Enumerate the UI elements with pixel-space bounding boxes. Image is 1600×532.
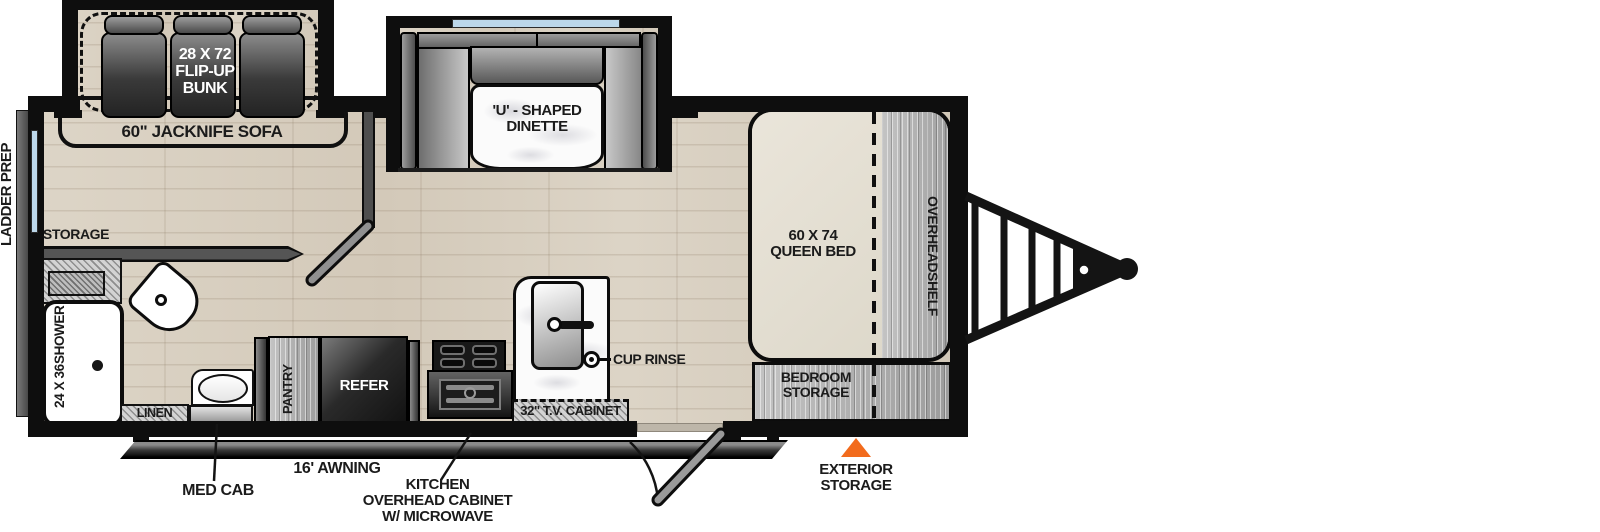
storage-label: STORAGE bbox=[36, 227, 116, 242]
burner-1 bbox=[440, 345, 465, 355]
cup-rinse-label: CUP RINSE bbox=[613, 352, 695, 367]
exterior-storage-marker bbox=[841, 438, 871, 457]
wall-tab-1 bbox=[54, 110, 82, 118]
oven-dial bbox=[464, 387, 476, 399]
tv-cabinet-label: 32" T.V. CABINET bbox=[512, 404, 629, 418]
dinette-window bbox=[452, 19, 620, 28]
wall-bottom-left bbox=[28, 421, 637, 437]
hitch bbox=[960, 180, 1145, 360]
overhead-shelf-label: OVERHEAD SHELF bbox=[892, 206, 940, 306]
kitchen-divider-left bbox=[254, 337, 268, 426]
bunk-headrest-3 bbox=[242, 15, 302, 35]
bunk-slide-wall-left bbox=[62, 0, 78, 112]
floorplan-canvas: LADDER PREP 28 X 72 FLIP-UP BUNK 60" JAC… bbox=[0, 0, 1600, 532]
linen-label: LINEN bbox=[120, 407, 189, 420]
dinette-armrest-right bbox=[641, 32, 658, 170]
dinette-slide-edge bbox=[398, 168, 660, 172]
bedroom-storage-label: BEDROOM STORAGE bbox=[757, 370, 875, 400]
burner-3 bbox=[440, 358, 465, 368]
bunk-headrest-1 bbox=[104, 15, 164, 35]
wall-tab-4 bbox=[670, 110, 698, 118]
queen-bed-label: 60 X 74 QUEEN BED bbox=[754, 228, 872, 260]
wall-tab-3 bbox=[374, 110, 390, 118]
dinette-slide-wall-left bbox=[386, 16, 400, 172]
burner-4 bbox=[472, 358, 497, 368]
med-cab-label: MED CAB bbox=[168, 483, 268, 500]
flip-up-bunk-label: 28 X 72 FLIP-UP BUNK bbox=[149, 47, 261, 98]
wall-tab-2 bbox=[316, 110, 344, 118]
cup-rinse-pointer bbox=[599, 358, 611, 361]
wall-top-right bbox=[670, 96, 968, 112]
faucet-handle-bar bbox=[558, 321, 594, 329]
faucet bbox=[547, 317, 562, 332]
bunk-headrest-2 bbox=[173, 15, 233, 35]
storage-counter-inner bbox=[48, 271, 105, 296]
shower-label: 24 X 36 SHOWER bbox=[52, 322, 106, 408]
dinette-slide-wall-right bbox=[658, 16, 672, 172]
bunk-slide-wall-top bbox=[62, 0, 334, 10]
toilet-flush-button bbox=[155, 294, 167, 306]
dinette-back-seat bbox=[470, 46, 604, 85]
exterior-storage-label: EXTERIOR STORAGE bbox=[806, 462, 906, 494]
bunk-slide-wall-right bbox=[318, 0, 334, 112]
dinette-label: 'U' - SHAPED DINETTE bbox=[472, 103, 602, 135]
jacknife-sofa-label: 60" JACKNIFE SOFA bbox=[92, 123, 312, 141]
cup-rinse-icon-dot bbox=[589, 357, 594, 362]
awning-bar bbox=[120, 440, 788, 459]
wall-bottom-right bbox=[723, 421, 968, 437]
wall-right bbox=[950, 96, 968, 437]
entry-door-threshold bbox=[637, 423, 723, 432]
bathroom-partition-wall bbox=[362, 108, 375, 228]
dinette-seat-left bbox=[417, 46, 470, 170]
burner-2 bbox=[472, 345, 497, 355]
pantry-label: PANTRY bbox=[280, 348, 308, 414]
bath-sink bbox=[198, 374, 248, 403]
ladder-prep-label: LADDER PREP bbox=[0, 130, 18, 246]
dinette-armrest-left bbox=[400, 32, 417, 170]
awning-label: 16' AWNING bbox=[277, 461, 397, 478]
refer-label: REFER bbox=[320, 378, 408, 394]
rear-window bbox=[31, 130, 38, 233]
kitchen-overhead-label: KITCHEN OVERHEAD CABINET W/ MICROWAVE bbox=[355, 477, 520, 525]
kitchen-divider-right bbox=[408, 340, 420, 426]
